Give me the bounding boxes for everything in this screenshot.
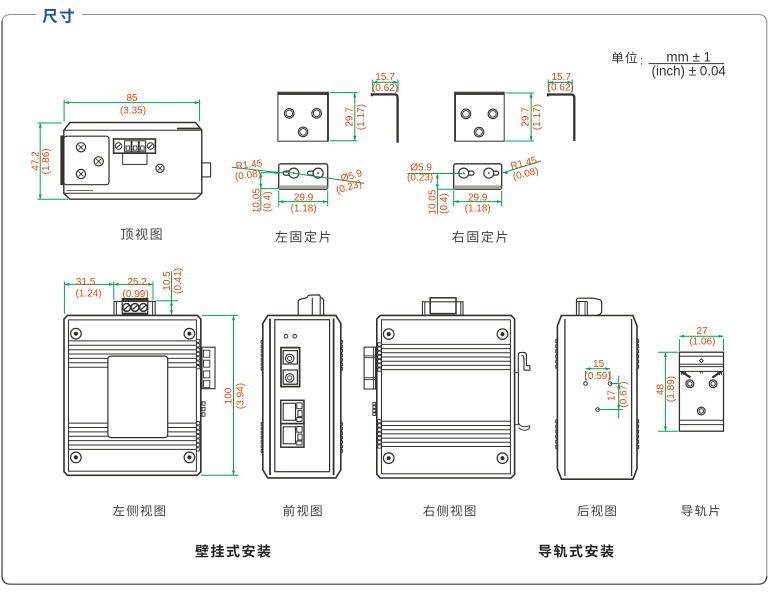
svg-text:(0.4): (0.4) — [439, 193, 450, 214]
svg-text:100: 100 — [224, 387, 235, 404]
svg-text:(0.67): (0.67) — [619, 381, 630, 407]
svg-text:(0.4): (0.4) — [262, 191, 273, 212]
svg-text:10.05: 10.05 — [251, 188, 262, 213]
svg-text:mm ± 1: mm ± 1 — [666, 49, 711, 64]
svg-text:29.9: 29.9 — [468, 193, 488, 204]
svg-text:47.2: 47.2 — [30, 151, 41, 171]
svg-text:85: 85 — [126, 93, 138, 104]
svg-text:(0.62): (0.62) — [372, 83, 398, 94]
svg-text:(0.62): (0.62) — [548, 82, 574, 93]
svg-text:(1.24): (1.24) — [76, 289, 102, 300]
svg-text:25.2: 25.2 — [127, 277, 147, 288]
svg-text:(1.86): (1.86) — [41, 148, 52, 174]
svg-text:(1.17): (1.17) — [356, 104, 367, 130]
svg-text:29.9: 29.9 — [294, 193, 314, 204]
svg-text:(0.41): (0.41) — [173, 268, 184, 294]
svg-text:10.5: 10.5 — [162, 271, 173, 291]
svg-text:29.7: 29.7 — [521, 107, 532, 127]
svg-text:(inch) ± 0.04: (inch) ± 0.04 — [652, 63, 727, 78]
svg-text:(1.89): (1.89) — [666, 376, 677, 402]
svg-text:15.7: 15.7 — [375, 72, 395, 83]
svg-text:(3.35): (3.35) — [120, 106, 146, 117]
svg-text:(3.94): (3.94) — [235, 383, 246, 409]
svg-text::: : — [640, 53, 643, 67]
svg-text:(0.59): (0.59) — [585, 371, 611, 382]
svg-text:10.05: 10.05 — [428, 189, 439, 214]
svg-text:(1.18): (1.18) — [291, 203, 317, 214]
svg-text:17: 17 — [606, 390, 617, 402]
svg-text:(1.18): (1.18) — [465, 203, 491, 214]
svg-text:15: 15 — [593, 359, 605, 370]
svg-text:31.5: 31.5 — [76, 277, 96, 288]
svg-text:(1.06): (1.06) — [689, 337, 715, 348]
svg-text:(1.17): (1.17) — [532, 104, 543, 130]
svg-text:29.7: 29.7 — [345, 107, 356, 127]
svg-text:48: 48 — [656, 384, 667, 396]
svg-text:(0.23): (0.23) — [407, 172, 433, 183]
